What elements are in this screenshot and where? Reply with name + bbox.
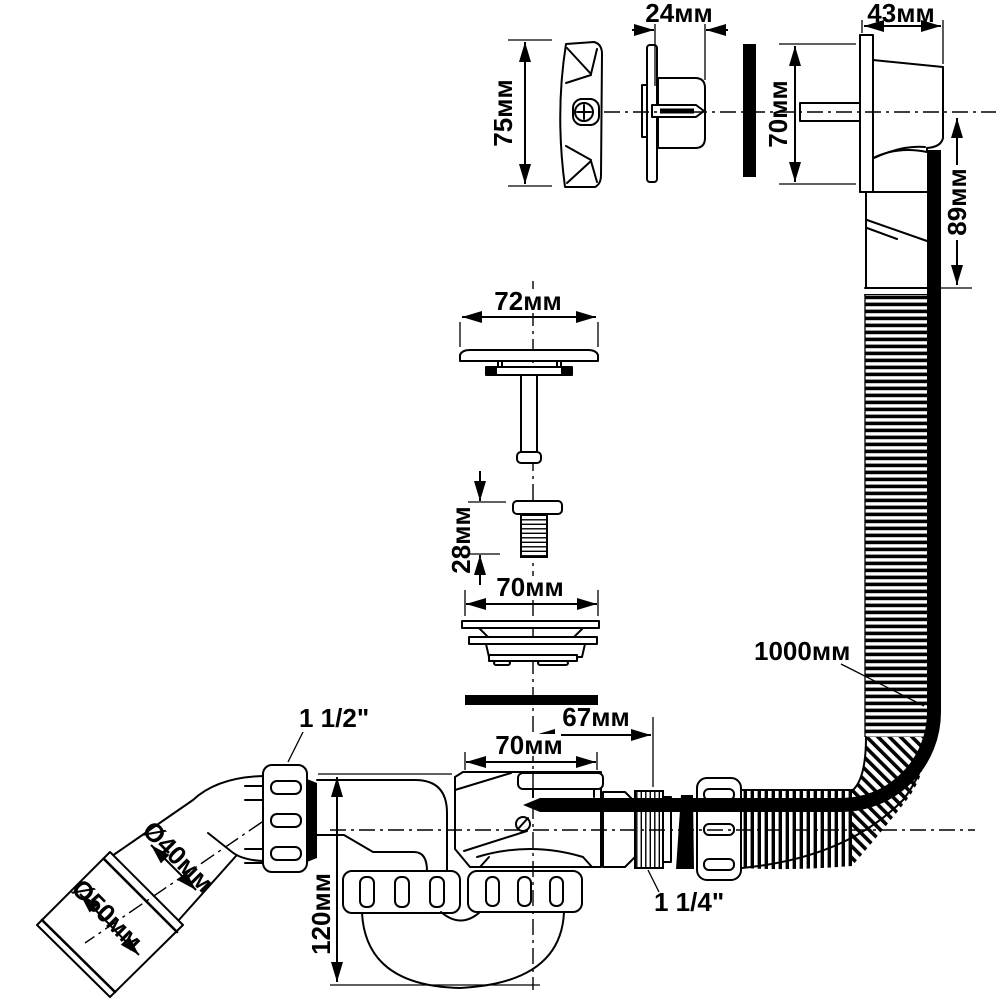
dim-siphon-flange-width: 70мм: [495, 730, 562, 760]
dim-strainer-width: 70мм: [496, 572, 563, 602]
drain-strainer: [462, 621, 599, 665]
hose-union-nut: [697, 778, 741, 880]
cover-stem: [521, 375, 537, 452]
dim-trap-height: 120мм: [306, 873, 336, 955]
drain-cover: [460, 350, 598, 463]
dim-pipe-diameter: Ø40мм: [137, 815, 220, 898]
leader-elbow-thread: [288, 732, 303, 762]
drain-seat-flange: [518, 773, 603, 789]
overflow-flange: [642, 45, 705, 182]
overflow-body: [800, 35, 943, 295]
dim-tail-length: 89мм: [942, 168, 972, 235]
bath-siphon-technical-drawing: 75мм 24мм 43мм 70мм 89мм 72мм 28мм 70мм …: [0, 0, 1000, 1000]
dim-body-height: 70мм: [763, 80, 793, 147]
dim-body-width: 43мм: [867, 0, 934, 28]
dim-elbow-thread: 1 1/2": [299, 703, 369, 733]
fixing-screw: [513, 501, 562, 557]
dim-hose-length: 1000мм: [754, 636, 850, 666]
corrugated-hose-vertical: [865, 295, 927, 737]
drawing-canvas: 75мм 24мм 43мм 70мм 89мм 72мм 28мм 70мм …: [0, 0, 1000, 1000]
siphon-body: [455, 772, 603, 867]
bath-wall-section-top: [743, 44, 756, 177]
trap-assembly: [343, 871, 582, 988]
dim-flange-depth: 24мм: [645, 0, 712, 28]
dim-cover-width: 72мм: [494, 286, 561, 316]
cover-stem-foot: [517, 452, 541, 463]
dim-outlet-offset: 67мм: [562, 702, 629, 732]
overflow-knob: [560, 42, 602, 187]
dim-knob-height: 75мм: [488, 79, 518, 146]
dim-union-thread: 1 1/4": [654, 887, 724, 917]
dim-screw-length: 28мм: [446, 506, 476, 573]
